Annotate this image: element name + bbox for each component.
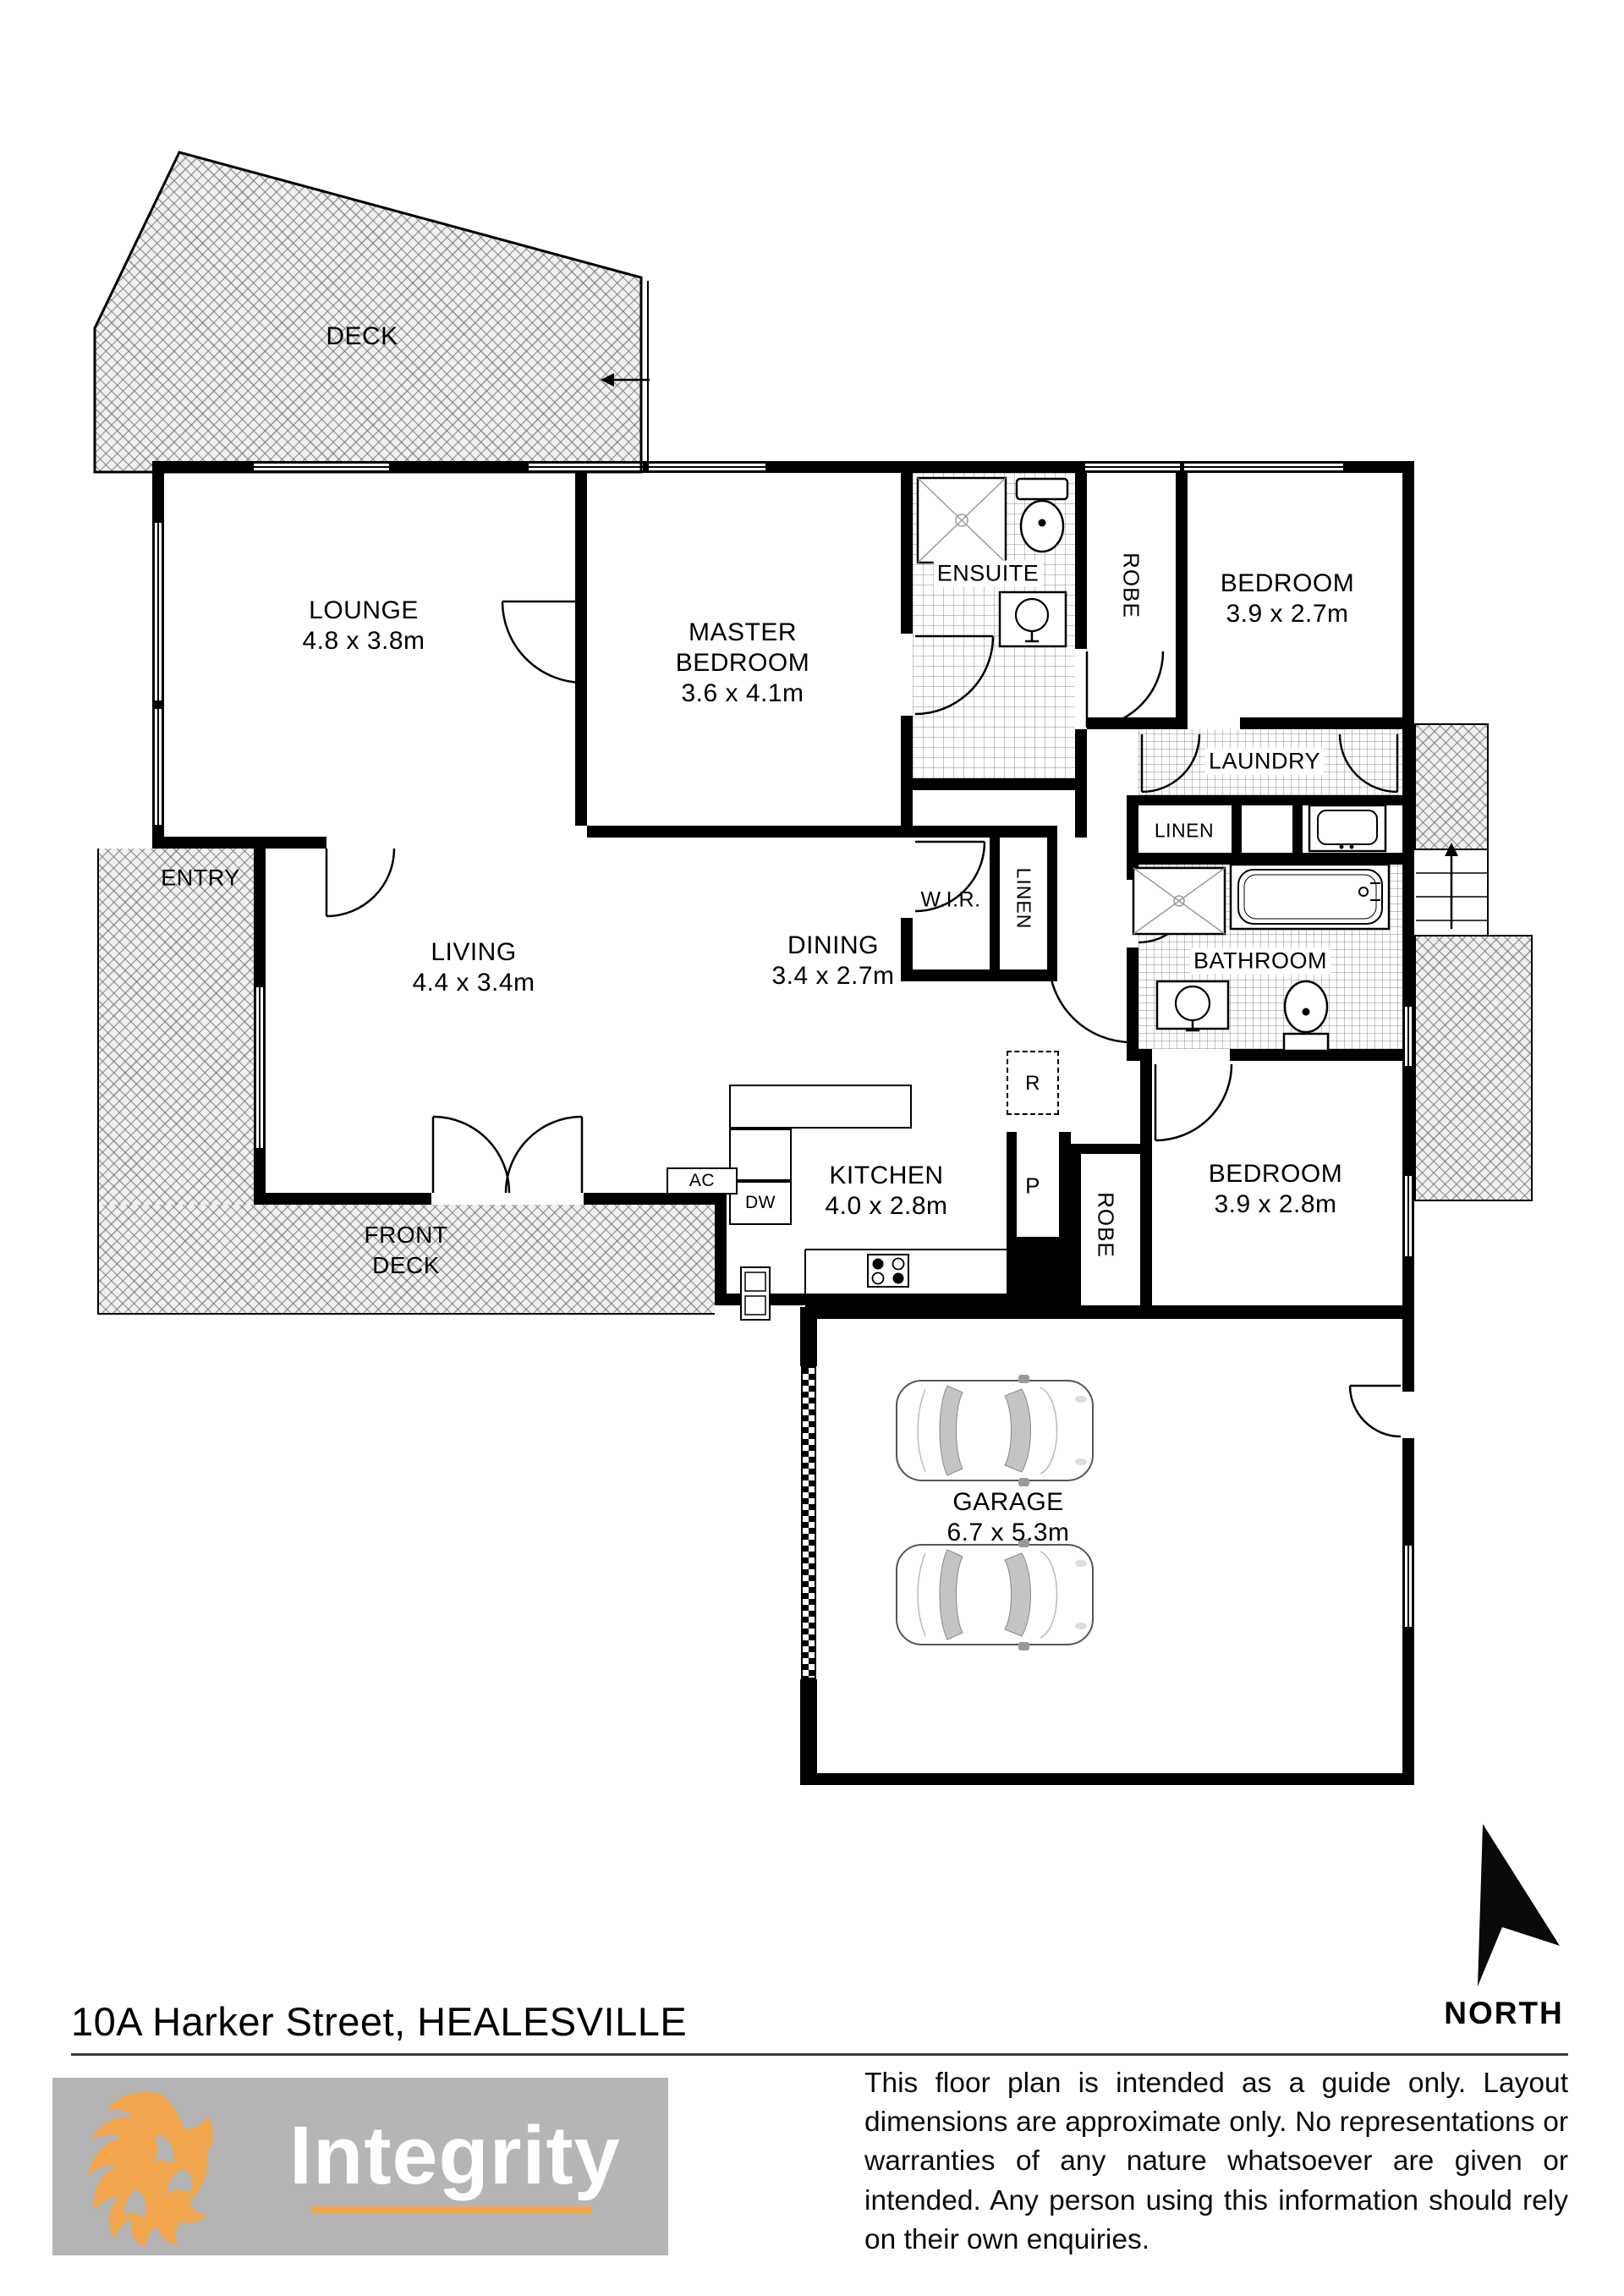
bedroom-front-label: BEDROOM (1209, 1160, 1343, 1189)
garage-roller-door (801, 1366, 816, 1679)
fridge-label: R (1025, 1072, 1040, 1096)
front-deck-label-line1: FRONT (365, 1222, 448, 1249)
wall-segment (1402, 461, 1414, 729)
entry-label: ENTRY (161, 865, 240, 892)
wall-segment (266, 1193, 431, 1205)
window (1085, 461, 1180, 473)
wall-segment (715, 1294, 1007, 1305)
master-bedroom-label-line1: MASTER (689, 618, 797, 647)
master-bedroom-label-line2: BEDROOM (676, 649, 810, 678)
wall-segment (1087, 717, 1176, 729)
wall-segment (1127, 1049, 1152, 1061)
wall-segment (1127, 948, 1138, 1061)
kitchen-label: KITCHEN (829, 1162, 943, 1190)
wall-segment (1007, 1237, 1071, 1305)
north-label: NORTH (1444, 1996, 1564, 2031)
bedroom-rear-dims: 3.9 x 2.7m (1226, 600, 1348, 629)
wall-segment (1047, 838, 1057, 969)
kitchen-dims: 4.0 x 2.8m (825, 1192, 947, 1221)
wall-segment (1127, 795, 1138, 880)
window (1402, 1176, 1414, 1256)
wall-segment (805, 1305, 1414, 1319)
bedroom-rear-label: BEDROOM (1221, 569, 1355, 598)
wall-segment (800, 1773, 1414, 1785)
lounge-dims: 4.8 x 3.8m (302, 627, 425, 656)
wall-segment (1402, 1066, 1414, 1176)
page-title: 10A Harker Street, HEALESVILLE (71, 1998, 687, 2045)
window (1184, 461, 1343, 473)
linen-laundry-label: LINEN (1155, 820, 1214, 843)
window (1402, 1007, 1414, 1066)
window (254, 461, 389, 473)
wall-segment (1071, 1144, 1140, 1154)
agency-logo-text: Integrity (289, 2108, 621, 2203)
wall-segment (901, 716, 913, 826)
wall-segment (1292, 805, 1303, 853)
wall-segment (1402, 1627, 1414, 1773)
wall-segment (800, 1679, 817, 1777)
wall-segment (1176, 473, 1188, 729)
wall-segment (1075, 729, 1087, 838)
wall-segment (990, 838, 1000, 969)
bathroom-label: BATHROOM (1190, 948, 1330, 975)
pantry-label: P (1025, 1173, 1040, 1200)
window (529, 461, 643, 473)
kitchen-bench-return (729, 1129, 792, 1181)
living-dims: 4.4 x 3.4m (412, 969, 535, 997)
divider (71, 2053, 1568, 2056)
window (254, 987, 266, 1148)
garage-dims: 6.7 x 5.3m (946, 1519, 1069, 1547)
dining-label: DINING (787, 931, 879, 960)
floor-plan: DECK LOUNGE 4.8 x 3.8m MASTER BEDROOM 3.… (0, 0, 1624, 1861)
garage-label: GARAGE (952, 1488, 1063, 1517)
wall-segment (575, 473, 587, 826)
wall-segment (901, 473, 913, 634)
laundry-label: LAUNDRY (1205, 749, 1324, 775)
wall-segment (1138, 795, 1402, 805)
wall-segment (1071, 1144, 1081, 1305)
window (152, 709, 164, 825)
robe-front-label: ROBE (1093, 1192, 1119, 1258)
lion-icon (64, 2088, 238, 2249)
ac-label: AC (689, 1171, 715, 1191)
wall-segment (1140, 1061, 1152, 1305)
window (647, 461, 765, 473)
ensuite-label: ENSUITE (934, 561, 1043, 587)
living-label: LIVING (431, 938, 516, 967)
wall-segment (1402, 1256, 1414, 1392)
wall-segment (1402, 729, 1414, 1007)
wall-segment (800, 1307, 817, 1366)
wall-segment (254, 849, 266, 987)
side-porch-lower (1414, 935, 1533, 1201)
logo-underline (311, 2206, 592, 2213)
robe-rear-label: ROBE (1118, 552, 1144, 618)
wall-segment (1230, 1049, 1414, 1061)
wall-segment (1059, 1132, 1071, 1237)
bedroom-front-dims: 3.9 x 2.8m (1214, 1190, 1336, 1219)
linen-hall-label: LINEN (1012, 868, 1035, 930)
deck-label: DECK (326, 322, 398, 351)
wall-segment (587, 826, 1057, 838)
wall-segment (1240, 717, 1414, 729)
floor-plan-page: { "title": { "address": "10A Harker Stre… (0, 0, 1624, 2296)
window (1402, 1546, 1414, 1627)
master-bedroom-dims: 3.6 x 4.1m (681, 679, 804, 708)
window (152, 523, 164, 700)
wall-segment (913, 778, 1075, 790)
dining-dims: 3.4 x 2.7m (771, 962, 894, 991)
disclaimer-text: This floor plan is intended as a guide o… (864, 2064, 1568, 2260)
wall-segment (715, 1193, 727, 1305)
side-porch-upper (1414, 723, 1489, 850)
wall-segment (1075, 473, 1087, 649)
wall-segment (1402, 1438, 1414, 1546)
wall-segment (1127, 853, 1402, 865)
wall-segment (584, 1193, 727, 1205)
wall-segment (254, 1148, 266, 1205)
wall-segment (1232, 805, 1242, 853)
wir-label: W.I.R. (920, 888, 980, 913)
front-deck-label-line2: DECK (372, 1252, 440, 1279)
lounge-label: LOUNGE (309, 596, 419, 625)
rear-deck-area (93, 151, 653, 474)
kitchen-bench (729, 1085, 912, 1129)
wall-segment (152, 837, 326, 849)
wall-segment (901, 969, 1057, 981)
wall-segment (1007, 1132, 1017, 1237)
entry-porch-area (97, 849, 254, 1205)
dishwasher-label: DW (745, 1193, 776, 1213)
ensuite-floor (913, 473, 1075, 778)
stairs-area (1414, 850, 1489, 935)
